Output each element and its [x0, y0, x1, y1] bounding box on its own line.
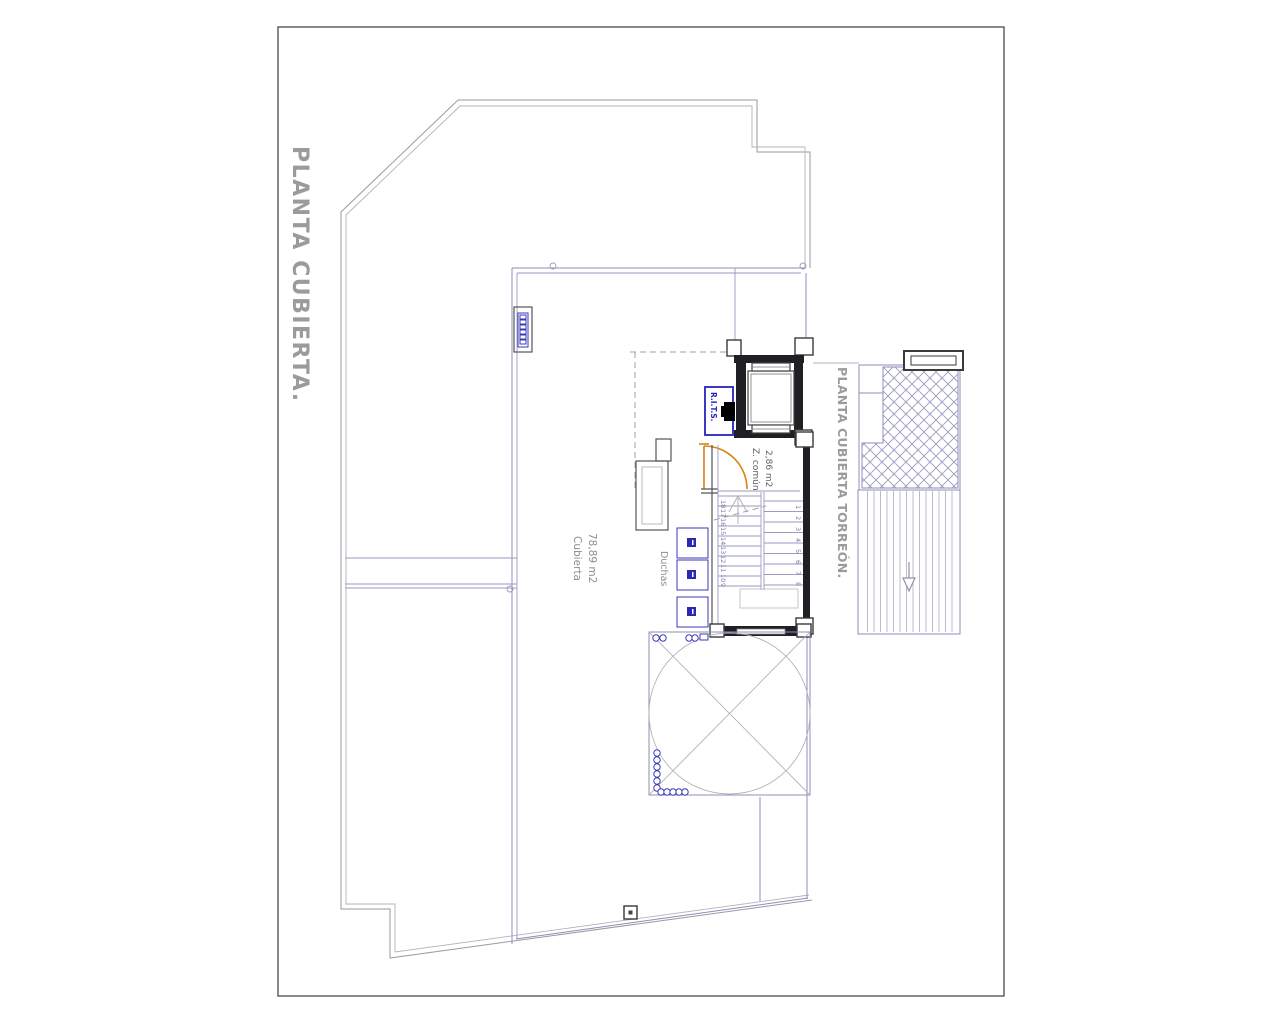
corridor-wall	[701, 489, 718, 493]
step-number: 8	[794, 582, 802, 586]
staircase: 18 17 16 15 14 13 12 11 10 9 1 2 3 4 5 6…	[710, 432, 813, 637]
floor-plan-sheet: PLANTA CUBIERTA.	[0, 0, 1280, 1024]
roof-chimney-blocks	[636, 439, 671, 530]
step-number: 14	[719, 537, 727, 545]
step-number: 16	[719, 518, 727, 526]
step-number: 13	[719, 546, 727, 554]
roof-area-value: 78,89 m2	[586, 533, 598, 583]
step-number: 1	[794, 505, 802, 509]
torreon-title: PLANTA CUBIERTA TORREÓN.	[835, 367, 850, 579]
step-number: 4	[794, 538, 802, 542]
step-number: 12	[719, 555, 727, 563]
elevator-shaft	[727, 268, 813, 445]
skylight	[649, 632, 810, 795]
step-number: 9	[719, 583, 727, 587]
torreon-tiled-area	[862, 367, 958, 488]
torreon-chimney	[904, 351, 963, 370]
floor-plan-drawing: PLANTA CUBIERTA.	[0, 0, 1280, 1024]
step-number: 17	[719, 509, 727, 517]
door-swing	[699, 444, 747, 489]
rits-label: R.I.T.S.	[709, 392, 718, 422]
boundary-marker	[624, 906, 637, 919]
common-zone-area: 2,86 m2	[763, 450, 773, 487]
step-number: 5	[794, 549, 802, 553]
wall-stub	[727, 340, 741, 356]
showers: Duchas	[658, 528, 708, 627]
elevator-cab	[748, 371, 794, 425]
step-number: 18	[719, 500, 727, 508]
pipe-vents	[653, 634, 708, 795]
step-number: 3	[794, 527, 802, 531]
common-zone-label: Z. común	[750, 448, 760, 491]
step-number: 6	[794, 560, 802, 564]
step-number: 10	[719, 574, 727, 582]
rits-meter	[724, 402, 735, 421]
rits-cabinet: R.I.T.S.	[705, 387, 735, 435]
step-number: 11	[719, 564, 727, 572]
step-number: 7	[794, 571, 802, 575]
page-title: PLANTA CUBIERTA.	[287, 146, 312, 403]
showers-label: Duchas	[658, 551, 669, 586]
step-number: 15	[719, 527, 727, 535]
step-number: 2	[794, 516, 802, 520]
roof-label: Cubierta	[571, 536, 583, 581]
terrace-outline	[341, 100, 812, 958]
